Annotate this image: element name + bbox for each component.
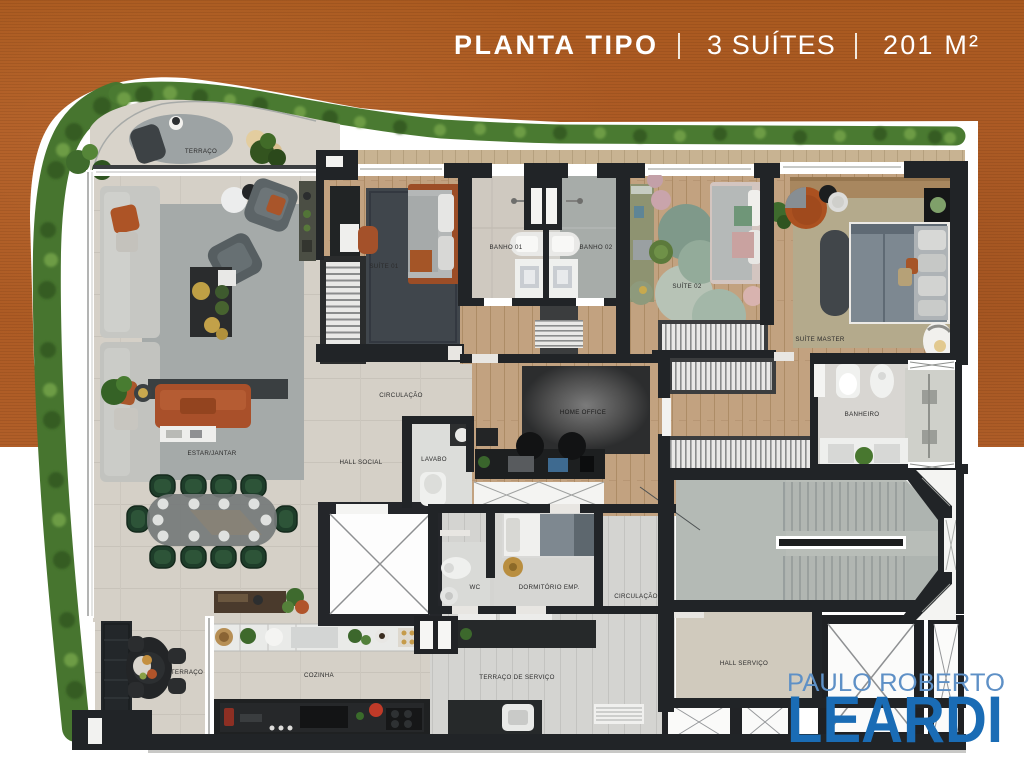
svg-text:TERRAÇO DE SERVIÇO: TERRAÇO DE SERVIÇO — [479, 674, 554, 681]
svg-text:BANHO 01: BANHO 01 — [489, 244, 522, 251]
svg-text:SUÍTE 01: SUÍTE 01 — [369, 263, 398, 270]
svg-text:HALL SERVIÇO: HALL SERVIÇO — [720, 660, 768, 667]
svg-text:BANHO 02: BANHO 02 — [579, 244, 612, 251]
svg-text:TERRAÇO: TERRAÇO — [171, 669, 203, 676]
svg-text:CIRCULAÇÃO: CIRCULAÇÃO — [614, 593, 658, 600]
svg-text:DORMITÓRIO EMP.: DORMITÓRIO EMP. — [519, 584, 580, 591]
svg-text:SUÍTE MASTER: SUÍTE MASTER — [795, 336, 845, 343]
svg-text:HALL SOCIAL: HALL SOCIAL — [340, 459, 383, 466]
svg-text:BANHEIRO: BANHEIRO — [845, 411, 880, 418]
svg-text:COZINHA: COZINHA — [304, 672, 335, 679]
svg-text:TERRAÇO: TERRAÇO — [185, 148, 217, 155]
svg-text:LAVABO: LAVABO — [421, 456, 447, 463]
svg-text:WC: WC — [470, 584, 481, 591]
svg-text:SUÍTE 02: SUÍTE 02 — [672, 283, 701, 290]
svg-text:HOME OFFICE: HOME OFFICE — [560, 409, 606, 416]
svg-text:ESTAR/JANTAR: ESTAR/JANTAR — [187, 450, 236, 457]
svg-text:LEARDI: LEARDI — [787, 682, 1003, 750]
svg-text:CIRCULAÇÃO: CIRCULAÇÃO — [379, 392, 423, 399]
